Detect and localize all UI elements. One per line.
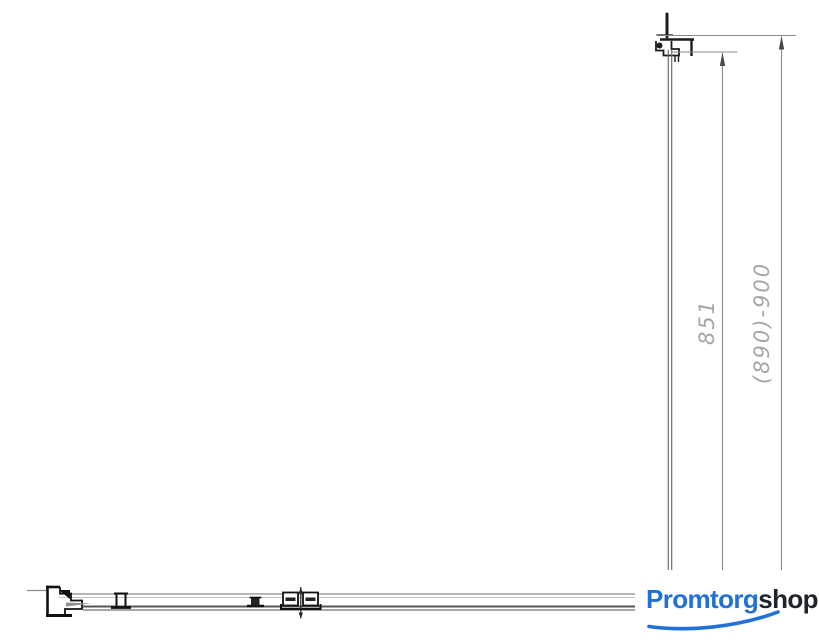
drawing-canvas: 851 (890)-900 Promtorgshop: [0, 0, 819, 640]
panel-clamp-icon: [111, 594, 131, 608]
glass-panel-edge: [668, 50, 671, 570]
promtorgshop-logo[interactable]: Promtorgshop: [646, 584, 818, 636]
small-bracket-icon: [247, 598, 264, 607]
bottom-wall-bracket-icon: [27, 586, 91, 617]
arrowhead-total-icon: [779, 36, 784, 50]
dimension-lines: [663, 36, 796, 571]
roller-carriage-icon: [281, 587, 321, 619]
top-profile-section-icon: [656, 14, 694, 62]
bottom-profile-bar: [59, 594, 635, 610]
logo-swoosh-icon: [646, 608, 818, 632]
technical-drawing: [0, 0, 819, 640]
arrowhead-851-icon: [720, 53, 725, 67]
